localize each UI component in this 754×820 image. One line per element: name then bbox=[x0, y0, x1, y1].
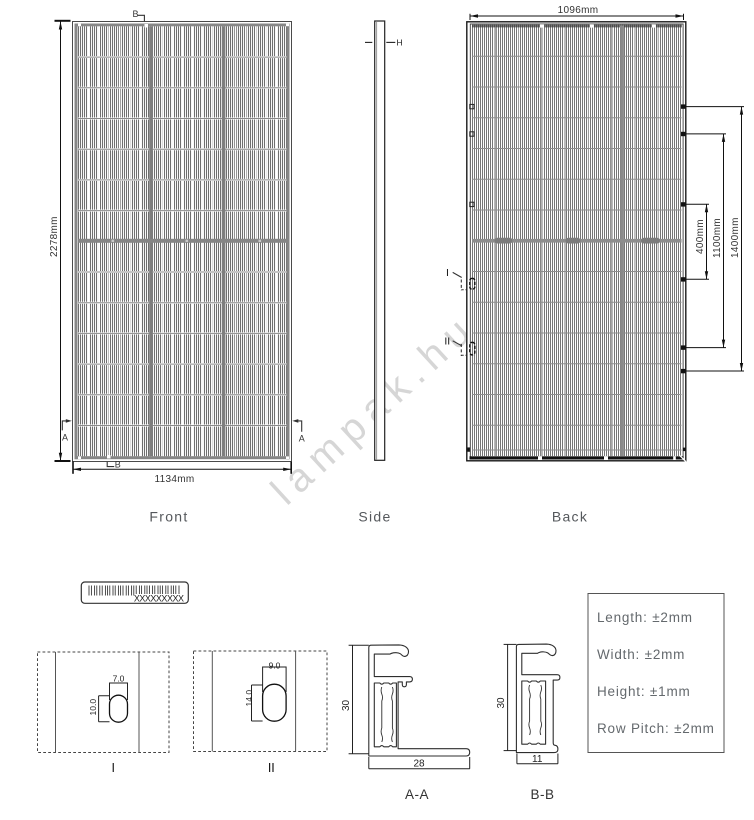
svg-text:Width: ±2mm: Width: ±2mm bbox=[597, 647, 685, 662]
svg-text:7.0: 7.0 bbox=[113, 674, 125, 684]
svg-text:28: 28 bbox=[413, 758, 425, 769]
svg-text:1100mm: 1100mm bbox=[712, 218, 723, 258]
svg-text:30: 30 bbox=[341, 699, 352, 711]
svg-text:B: B bbox=[133, 9, 139, 19]
svg-text:B: B bbox=[115, 460, 121, 470]
svg-text:400mm: 400mm bbox=[695, 219, 706, 254]
svg-text:A: A bbox=[62, 433, 68, 443]
svg-text:lampak.hu: lampak.hu bbox=[263, 305, 485, 514]
svg-text:II: II bbox=[444, 336, 450, 348]
svg-text:30: 30 bbox=[496, 697, 507, 709]
svg-text:1400mm: 1400mm bbox=[730, 217, 741, 258]
svg-text:11: 11 bbox=[532, 754, 543, 765]
svg-text:B-B: B-B bbox=[530, 787, 554, 802]
svg-text:A-A: A-A bbox=[405, 787, 429, 802]
svg-text:Length: ±2mm: Length: ±2mm bbox=[597, 610, 693, 625]
svg-text:Back: Back bbox=[552, 509, 588, 525]
svg-text:2278mm: 2278mm bbox=[49, 216, 60, 257]
svg-text:1096mm: 1096mm bbox=[558, 5, 599, 16]
svg-text:II: II bbox=[268, 761, 275, 775]
svg-text:9.0: 9.0 bbox=[269, 661, 281, 671]
svg-text:I: I bbox=[446, 267, 449, 279]
svg-text:Side: Side bbox=[358, 509, 391, 525]
svg-text:10.0: 10.0 bbox=[88, 699, 98, 716]
svg-text:14.0: 14.0 bbox=[244, 690, 254, 707]
svg-text:Front: Front bbox=[149, 509, 188, 525]
svg-text:Row Pitch: ±2mm: Row Pitch: ±2mm bbox=[597, 721, 715, 736]
svg-text:XXXXXXXXX: XXXXXXXXX bbox=[134, 594, 184, 604]
svg-text:A: A bbox=[299, 434, 305, 444]
svg-text:I: I bbox=[112, 761, 115, 775]
svg-text:Height: ±1mm: Height: ±1mm bbox=[597, 684, 691, 699]
svg-text:H: H bbox=[397, 37, 403, 47]
svg-text:1134mm: 1134mm bbox=[155, 474, 195, 485]
